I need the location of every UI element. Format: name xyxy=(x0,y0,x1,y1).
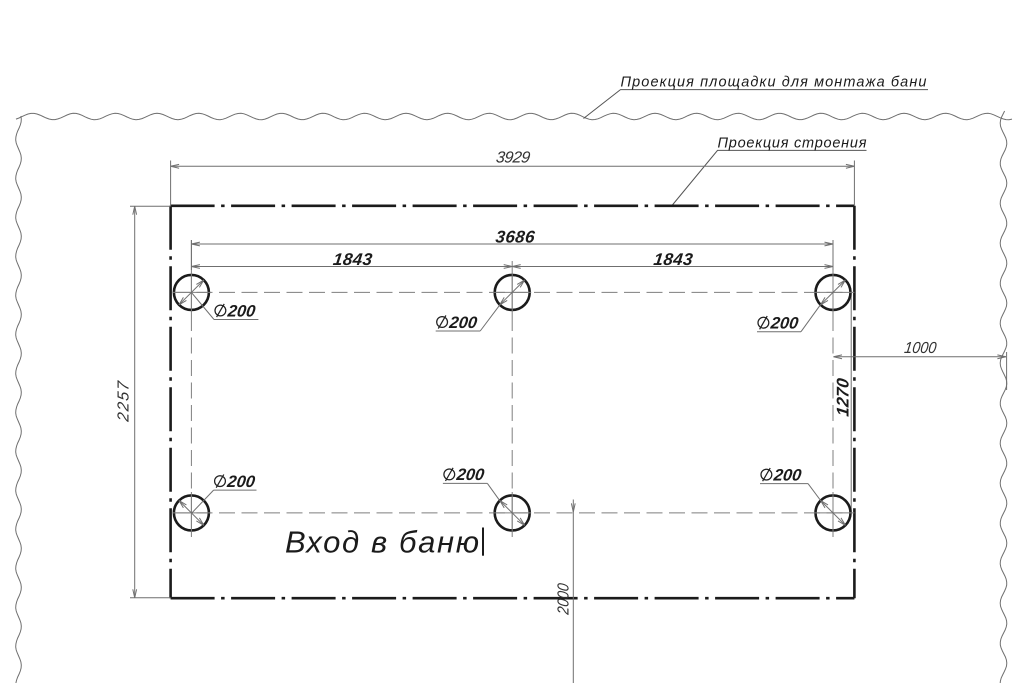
svg-text:Проекция площадки для монтажа: Проекция площадки для монтажа бани xyxy=(621,75,927,91)
svg-text:200: 200 xyxy=(226,301,258,320)
svg-text:200: 200 xyxy=(772,465,804,484)
svg-text:200: 200 xyxy=(225,472,257,491)
svg-text:3686: 3686 xyxy=(495,227,537,246)
svg-text:2257: 2257 xyxy=(115,379,133,423)
svg-text:2000: 2000 xyxy=(555,582,573,616)
svg-text:200: 200 xyxy=(769,314,801,333)
svg-text:200: 200 xyxy=(455,465,487,484)
svg-text:1843: 1843 xyxy=(332,250,374,269)
svg-text:1270: 1270 xyxy=(834,377,853,418)
svg-text:1843: 1843 xyxy=(653,250,695,269)
svg-text:Проекция строения: Проекция строения xyxy=(718,135,867,151)
svg-text:3929: 3929 xyxy=(495,149,531,167)
svg-text:Вход в баню: Вход в баню xyxy=(285,525,479,560)
svg-text:200: 200 xyxy=(447,313,479,332)
svg-text:1000: 1000 xyxy=(903,339,937,357)
